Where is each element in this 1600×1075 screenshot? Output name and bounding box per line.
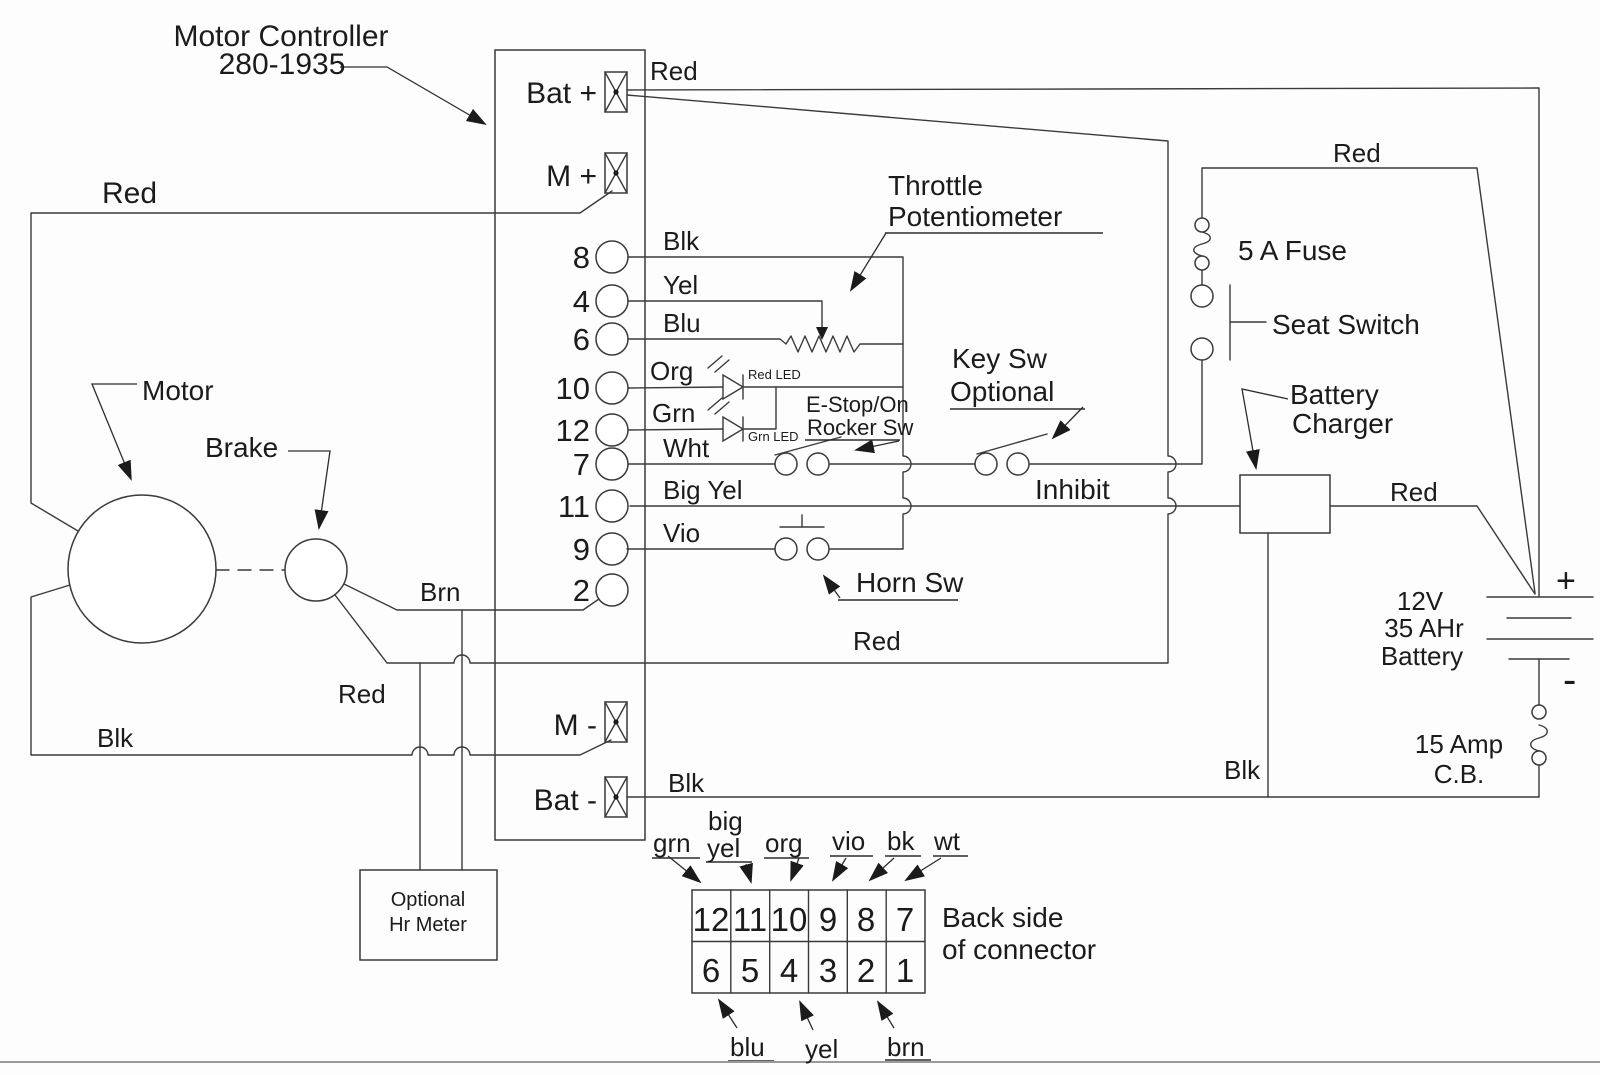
connector-label-brn: brn	[887, 1032, 925, 1062]
wire-brn-brake-to-pin2	[344, 584, 599, 610]
circuit-breaker-symbol	[1531, 705, 1548, 765]
battery-label-line3: Battery	[1381, 641, 1463, 671]
estop-label-line2: Rocker Sw	[807, 415, 913, 440]
connector-caption-line1: Back side	[942, 902, 1063, 933]
terminal-m-minus	[605, 702, 627, 742]
wire-label-red-left: Red	[102, 177, 157, 210]
brake-label: Brake	[205, 432, 278, 463]
wire-label-red-top: Red	[650, 56, 698, 86]
key-switch	[975, 434, 1047, 475]
terminal-label-m-plus: M +	[546, 160, 597, 193]
terminal-label-bat-plus: Bat +	[526, 77, 597, 110]
throttle-pot-label-line1: Throttle	[888, 170, 983, 201]
seat-switch-symbol	[1191, 270, 1266, 360]
terminal-m-plus	[605, 153, 627, 193]
pin-number-9: 9	[573, 532, 590, 567]
connector-label-yel-bottom: yel	[805, 1034, 838, 1064]
battery-label-line1: 12V	[1397, 586, 1444, 616]
pin-number-12: 12	[556, 413, 590, 448]
red-led-label: Red LED	[748, 367, 801, 382]
battery-charger-label-line2: Charger	[1292, 408, 1393, 439]
wire-label-red-charger: Red	[1390, 477, 1438, 507]
wire-label-blk-bat-minus: Blk	[668, 768, 705, 798]
wire-label-blk-left: Blk	[97, 723, 134, 753]
estop-label-line1: E-Stop/On	[806, 392, 909, 417]
wire-wht-pin7	[628, 360, 1202, 464]
throttle-pot-label-line2: Potentiometer	[888, 201, 1062, 232]
connector-label-bk: bk	[887, 826, 915, 856]
wire-label-red-fuse: Red	[1333, 138, 1381, 168]
brake-symbol	[216, 539, 347, 601]
connector-caption-line2: of connector	[942, 934, 1096, 965]
connector-cell-7: 7	[896, 901, 914, 938]
connector-cell-2: 2	[857, 952, 875, 989]
battery-label-line2: 35 AHr	[1384, 613, 1464, 643]
pin-number-11: 11	[558, 489, 590, 524]
circuit-breaker-label-line2: C.B.	[1434, 759, 1485, 789]
wire-label-big-yel: Big Yel	[663, 475, 743, 505]
seat-switch-label: Seat Switch	[1272, 309, 1420, 340]
connector-cell-9: 9	[819, 901, 837, 938]
connector-label-blu: blu	[730, 1032, 765, 1062]
grn-led-label: Grn LED	[748, 429, 799, 444]
wire-label-red-lower-left: Red	[338, 679, 386, 709]
connector-label-big: big	[708, 806, 743, 836]
connector-label-yel-top: yel	[707, 833, 740, 863]
connector-cell-11: 11	[733, 901, 767, 938]
connector-cell-4: 4	[780, 952, 798, 989]
title-line2: 280-1935	[219, 48, 346, 81]
pin-number-2: 2	[573, 573, 590, 608]
terminal-bat-plus	[605, 72, 627, 112]
circuit-breaker-label-line1: 15 Amp	[1415, 729, 1503, 759]
connector-label-vio: vio	[832, 826, 865, 856]
wire-label-blu: Blu	[663, 308, 701, 338]
wire-label-blk-charger: Blk	[1224, 755, 1261, 785]
motor-label: Motor	[142, 375, 214, 406]
connector-cell-8: 8	[857, 901, 875, 938]
wire-label-red-brake: Red	[853, 626, 901, 656]
connector-label-org: org	[765, 828, 803, 858]
wire-label-org: Org	[650, 356, 693, 386]
battery-charger-label-line1: Battery	[1290, 379, 1379, 410]
connector-cell-12: 12	[693, 901, 730, 938]
wire-label-yel: Yel	[663, 270, 698, 300]
battery-symbol	[1487, 597, 1593, 797]
key-sw-label-line2: Optional	[950, 376, 1054, 407]
battery-minus-sign: -	[1563, 658, 1576, 702]
connector-label-grn: grn	[653, 828, 691, 858]
pin-number-10: 10	[556, 371, 590, 406]
battery-plus-sign: +	[1556, 562, 1576, 600]
connector-label-wt: wt	[933, 826, 961, 856]
hr-meter-label-line2: Hr Meter	[389, 914, 467, 936]
wire-label-brn: Brn	[420, 577, 460, 607]
horn-sw-label: Horn Sw	[856, 567, 964, 598]
connector-cell-6: 6	[702, 952, 720, 989]
wire-blu-pin6-potentiometer	[628, 336, 903, 352]
pin-number-8: 8	[573, 240, 590, 275]
key-sw-label-line1: Key Sw	[952, 343, 1048, 374]
terminal-label-m-minus: M -	[554, 709, 597, 742]
wire-red-bat-plus-to-battery	[627, 88, 1539, 597]
controller-pins	[596, 241, 628, 606]
pin-number-6: 6	[573, 322, 590, 357]
wire-red-m-plus-to-motor	[31, 191, 612, 531]
pin-number-4: 4	[573, 284, 590, 319]
connector-cell-5: 5	[741, 952, 759, 989]
wiring-diagram: Motor Controller 280-1935 Bat + M + M - …	[0, 0, 1600, 1075]
horn-switch	[775, 515, 829, 560]
connector-cell-3: 3	[819, 952, 837, 989]
hr-meter-label-line1: Optional	[391, 889, 466, 911]
pin-number-7: 7	[573, 447, 590, 482]
wire-label-vio: Vio	[663, 518, 700, 548]
wiring-diagram-page: Motor Controller 280-1935 Bat + M + M - …	[0, 0, 1600, 1075]
terminal-bat-minus	[605, 777, 627, 817]
terminal-label-bat-minus: Bat -	[534, 784, 597, 817]
wire-yel-pin4-wiper	[628, 301, 828, 340]
inhibit-label: Inhibit	[1035, 474, 1110, 505]
wire-label-grn: Grn	[652, 398, 695, 428]
motor-symbol	[68, 495, 216, 643]
connector-cell-10: 10	[771, 901, 808, 938]
wire-label-blk-pin8: Blk	[663, 226, 700, 256]
wire-label-wht: Wht	[663, 433, 710, 463]
fuse-label: 5 A Fuse	[1238, 235, 1347, 266]
connector-cell-1: 1	[896, 952, 914, 989]
